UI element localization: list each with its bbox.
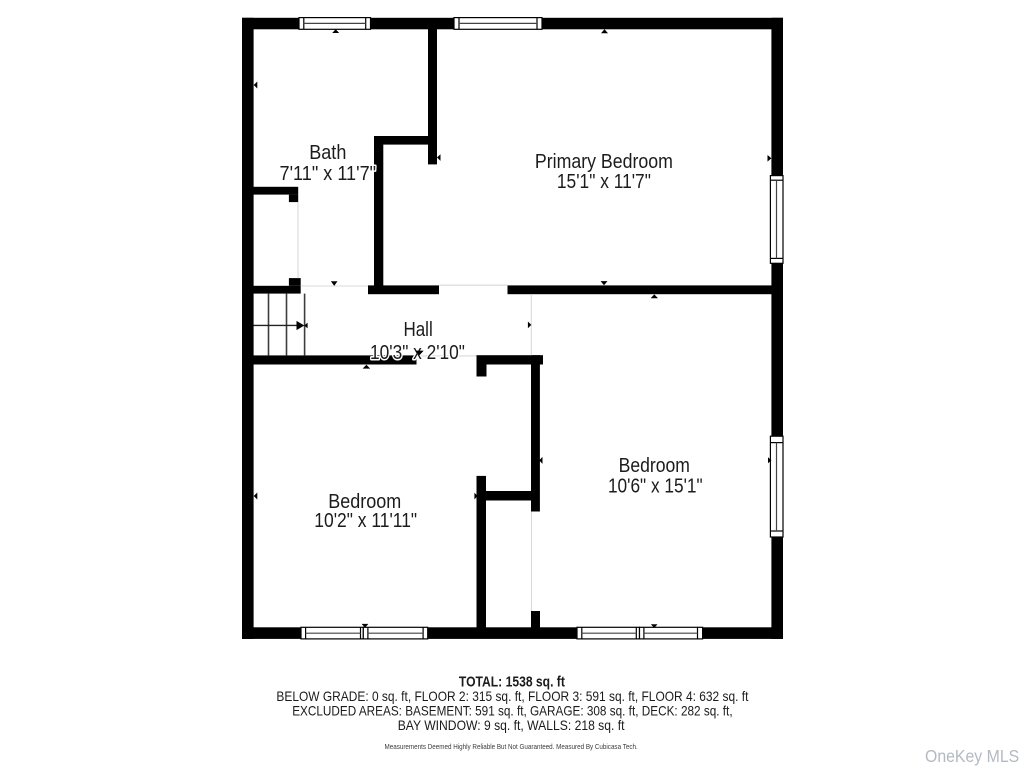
svg-text:Bedroom: Bedroom [619,454,690,477]
svg-text:Hall: Hall [403,318,432,341]
svg-text:Measurements Deemed Highly Rel: Measurements Deemed Highly Reliable But … [385,742,638,751]
svg-text:10'6" x 15'1": 10'6" x 15'1" [608,475,703,498]
svg-text:OneKey MLS: OneKey MLS [925,746,1019,766]
svg-text:15'1" x 11'7": 15'1" x 11'7" [557,170,651,193]
svg-text:7'11" x 11'7": 7'11" x 11'7" [280,162,377,185]
svg-text:EXCLUDED AREAS: BASEMENT: 591: EXCLUDED AREAS: BASEMENT: 591 sq. ft, GA… [292,704,732,719]
svg-text:BAY WINDOW: 9 sq. ft, WALLS: 2: BAY WINDOW: 9 sq. ft, WALLS: 218 sq. ft [398,718,625,733]
svg-text:10'2" x 11'11": 10'2" x 11'11" [314,509,417,532]
svg-text:Bath: Bath [309,141,346,164]
svg-text:BELOW GRADE: 0 sq. ft, FLOOR 2: BELOW GRADE: 0 sq. ft, FLOOR 2: 315 sq. … [276,689,748,704]
svg-text:TOTAL: 1538 sq. ft: TOTAL: 1538 sq. ft [459,673,565,690]
